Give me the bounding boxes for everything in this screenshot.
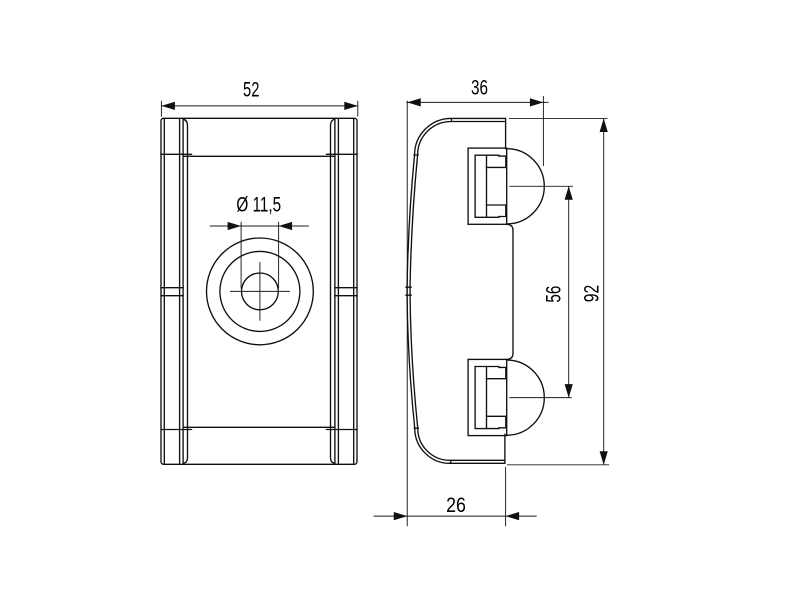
svg-text:26: 26 — [446, 494, 466, 517]
svg-text:Ø 11,5: Ø 11,5 — [236, 194, 281, 217]
svg-text:36: 36 — [471, 76, 488, 99]
svg-text:92: 92 — [580, 285, 603, 302]
svg-text:56: 56 — [543, 286, 566, 303]
svg-text:52: 52 — [243, 79, 259, 102]
